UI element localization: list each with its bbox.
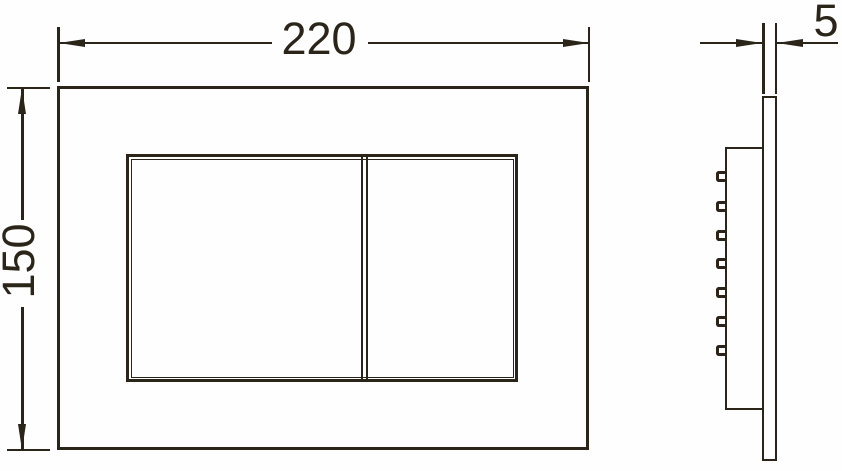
dim-thickness-extension-line-left xyxy=(762,23,765,94)
dim-width-arrowhead-left-icon xyxy=(59,39,85,47)
mounting-clip-6 xyxy=(716,316,726,327)
side-view-plate-profile xyxy=(762,96,777,461)
dim-width-line-right-segment xyxy=(368,42,588,45)
dim-height-extension-line-bottom xyxy=(7,449,50,452)
mounting-clip-3 xyxy=(716,230,726,241)
dim-height-arrowhead-bottom-icon xyxy=(18,424,26,450)
mounting-clip-5 xyxy=(716,287,726,298)
side-view-mounting-frame xyxy=(725,147,765,410)
dim-height-extension-line-top xyxy=(7,87,50,90)
dim-width-arrowhead-right-icon xyxy=(563,39,589,47)
dim-width-line-left-segment xyxy=(59,42,272,45)
dim-thickness-extension-line-right xyxy=(775,23,778,94)
dim-width-extension-line-right xyxy=(588,27,591,82)
dim-width-label: 220 xyxy=(271,15,367,63)
mounting-clip-2 xyxy=(716,201,726,212)
dim-thickness-arrowhead-left-icon xyxy=(736,39,762,47)
dim-height-label: 150 xyxy=(0,213,43,309)
mounting-clip-4 xyxy=(716,258,726,269)
dim-width-extension-line-left xyxy=(57,27,60,82)
dim-thickness-label: 5 xyxy=(778,0,842,45)
technical-drawing-canvas: 220 150 5 xyxy=(0,0,842,471)
mounting-clip-1 xyxy=(716,171,726,182)
button-divider xyxy=(361,157,368,379)
large-flush-button xyxy=(132,160,358,376)
mounting-clip-7 xyxy=(716,345,726,356)
dim-height-arrowhead-top-icon xyxy=(18,88,26,114)
small-flush-button xyxy=(371,160,512,376)
